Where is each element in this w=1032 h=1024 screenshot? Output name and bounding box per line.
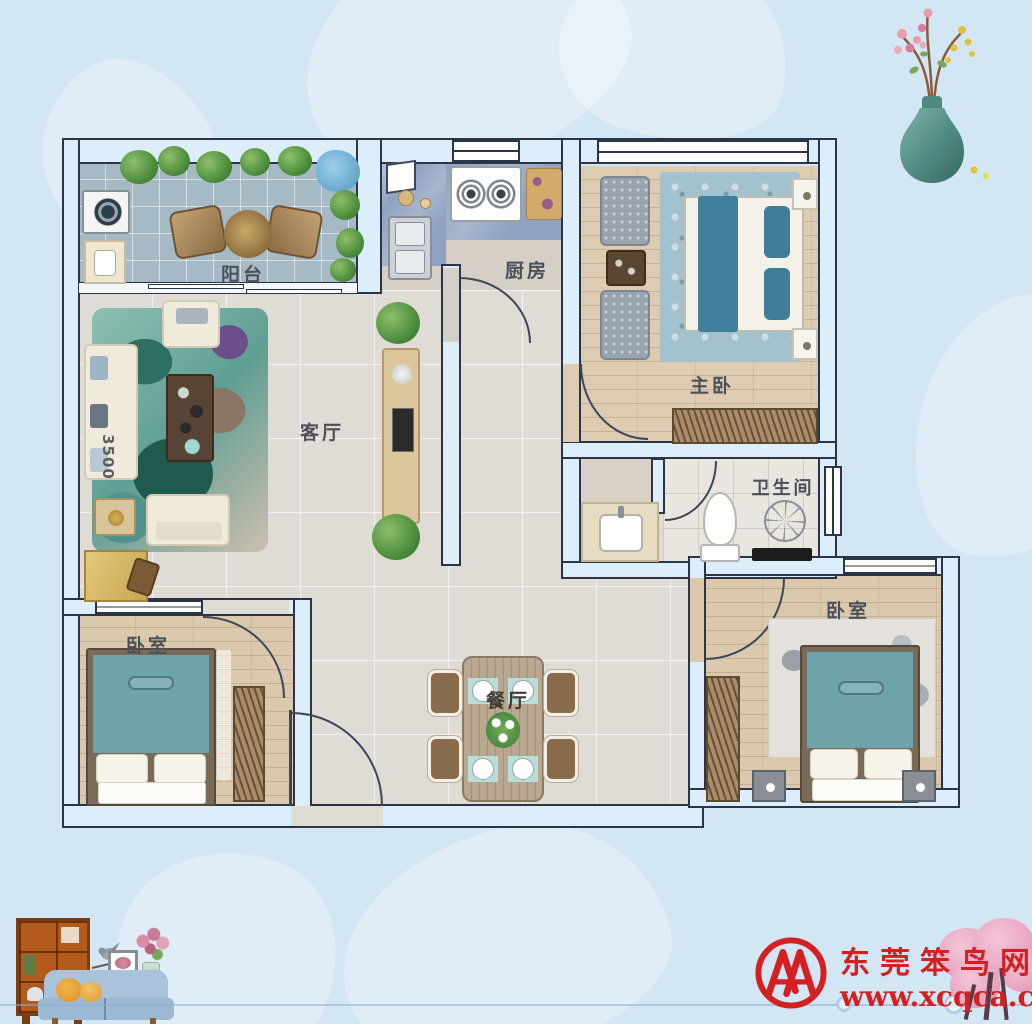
master-side-table [606, 250, 646, 286]
sofa-pillow-orange [80, 982, 102, 1002]
stove [450, 166, 522, 222]
balcony-cabinet [84, 240, 126, 284]
master-pillow [764, 268, 790, 320]
sofa-decoration-seat [38, 998, 174, 1020]
sofa-leg [150, 1018, 156, 1024]
balcony-slider-panel [246, 289, 342, 294]
kitchen-window [452, 140, 520, 162]
bed-pillow [810, 749, 858, 779]
room-label-master-bedroom: 主卧 [672, 371, 752, 398]
bedroom-left-sheer [216, 650, 232, 780]
site-url: www.xcqca.com [840, 980, 1032, 1013]
kitchen-door-opening [443, 268, 459, 342]
washing-machine [82, 190, 130, 234]
shower-mat [752, 548, 812, 561]
placemat [508, 756, 538, 782]
living-armchair-bottom [146, 494, 230, 546]
sink-basin [395, 250, 425, 274]
bed-footboard [98, 782, 206, 804]
dining-centerpiece [486, 712, 520, 748]
bedroom-left-window [95, 600, 203, 614]
master-bed-runner [698, 196, 738, 332]
entry-door-leaf [289, 710, 292, 806]
bathroom-vanity [581, 502, 659, 562]
wall-bottom [62, 804, 704, 828]
living-side-table [94, 498, 136, 536]
bed-blanket [93, 655, 209, 753]
sofa-pillow-orange [56, 978, 82, 1002]
kitchen-sink [388, 216, 432, 280]
balcony-chair [264, 204, 324, 260]
bedroom-right-wardrobe [706, 676, 740, 802]
background-leaf [320, 798, 691, 1024]
kitchen-dish [420, 198, 431, 209]
shelf-legs [22, 1016, 30, 1024]
room-label-balcony: 阳台 [203, 260, 283, 287]
balcony-plant [336, 228, 364, 258]
cutting-board [526, 168, 562, 220]
bedroom-right-window [843, 558, 937, 574]
master-door-opening [563, 364, 579, 442]
bedroom-left-door-opening [203, 600, 289, 614]
balcony-plant [196, 151, 232, 183]
wall-hall-master-divider [561, 138, 581, 578]
bed-pillow [96, 754, 148, 784]
balcony-plant [330, 190, 360, 220]
shower-head-icon [764, 500, 806, 542]
room-label-living-room: 客厅 [282, 418, 362, 445]
balcony-pond [316, 150, 360, 192]
bed-pillow [154, 754, 206, 784]
dining-chair [428, 670, 462, 716]
sink-basin [395, 222, 425, 246]
bed-handle [838, 681, 884, 695]
balcony-round-mat [224, 210, 272, 258]
console-plant [372, 514, 420, 560]
balcony-plant [120, 150, 158, 184]
living-coffee-table [166, 374, 214, 462]
flower-bouquet-decoration [134, 926, 170, 964]
balcony-plant [330, 258, 356, 282]
faucet-icon [618, 506, 624, 518]
wall-left [62, 138, 80, 828]
entry-door-opening [291, 806, 383, 826]
room-label-kitchen: 厨房 [487, 256, 567, 283]
dining-chair [544, 736, 578, 782]
balcony-chair [168, 204, 228, 260]
tv-console [382, 348, 420, 524]
wall-balcony-right [356, 138, 382, 294]
master-pillow [764, 206, 790, 258]
toilet-bowl [703, 492, 737, 546]
balcony-plant [278, 146, 312, 176]
master-nightstand [792, 328, 818, 360]
master-wardrobe [672, 408, 818, 444]
master-nightstand [792, 178, 818, 210]
site-name: 东莞笨鸟网 [840, 938, 1032, 982]
floorplan-page: 阳台 厨房 主卧 客厅 卫生间 卧室 餐厅 卧室 3500 [0, 0, 1032, 1024]
room-label-bedroom-left: 卧室 [108, 631, 188, 658]
dimension-3500: 3500 [99, 427, 117, 487]
toilet [700, 544, 740, 562]
tv-icon [392, 408, 414, 452]
master-bedroom-window [597, 140, 809, 164]
console-plant [376, 302, 420, 344]
bedroom-left-wardrobe [233, 686, 265, 802]
background-leaf [898, 276, 1032, 575]
cabinet-sink [94, 250, 116, 276]
bed-footboard [812, 779, 910, 801]
sofa-pillow [90, 356, 108, 380]
room-label-bathroom: 卫生间 [733, 474, 833, 500]
vanity-sink [599, 514, 643, 552]
bed-blanket [807, 652, 913, 748]
balcony-plant [158, 146, 190, 176]
sofa-pillow [90, 404, 108, 428]
placemat [468, 756, 498, 782]
dining-chair [544, 670, 578, 716]
balcony-plant [240, 148, 270, 176]
master-bed [684, 196, 804, 332]
bedroom-left-bed [86, 648, 216, 806]
bedroom-right-nightstand [902, 770, 936, 802]
washer-drum-icon [94, 198, 122, 226]
flower-vase-decoration [862, 0, 1002, 195]
master-armchair [600, 290, 650, 360]
sofa-leg [52, 1018, 58, 1024]
master-armchair [600, 176, 650, 246]
room-label-bedroom-right: 卧室 [808, 596, 888, 623]
room-label-dining-room: 餐厅 [468, 686, 548, 713]
bed-handle [128, 676, 174, 690]
kitchen-dish [398, 190, 414, 206]
dining-chair [428, 736, 462, 782]
bedroom-right-nightstand [752, 770, 786, 802]
living-armchair-top [162, 300, 220, 348]
range-hood [386, 160, 416, 194]
wall-bedroom-right-right [941, 556, 960, 808]
bedroom-right-door-opening [690, 578, 704, 662]
site-logo [754, 936, 828, 1010]
